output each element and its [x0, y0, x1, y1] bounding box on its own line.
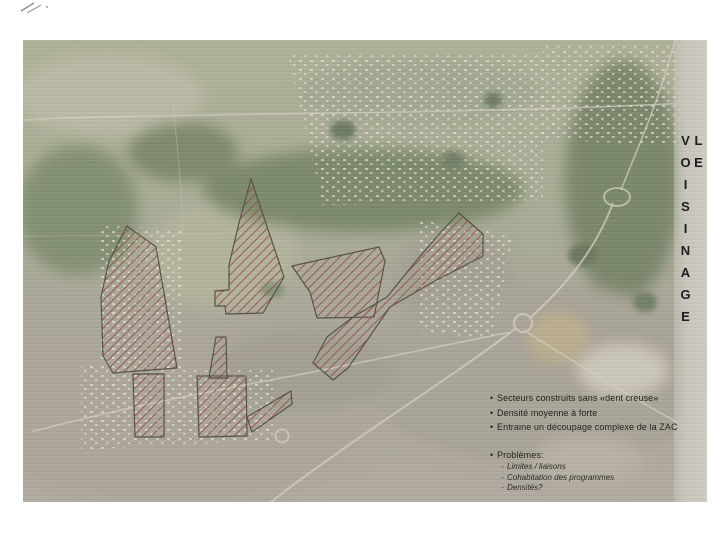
- note-bullet: •Entraine un découpage complexe de la ZA…: [490, 420, 680, 435]
- note-text: Densité moyenne à forte: [497, 408, 597, 418]
- problem-text: Limites / liaisons: [507, 462, 566, 471]
- vertical-title: LE VOISINAGE: [683, 133, 705, 393]
- problem-text: Cohabitation des programmes: [507, 473, 614, 482]
- hatched-sector-bottom-left: [133, 374, 164, 437]
- problem-item: -Densités?: [501, 483, 680, 494]
- bullet-marker: •: [490, 420, 497, 435]
- problem-item: -Cohabitation des programmes: [501, 473, 680, 484]
- note-text: Entraine un découpage complexe de la ZAC: [497, 422, 678, 432]
- note-bullet: •Secteurs construits sans «dent creuse»: [490, 391, 680, 406]
- problems-label: Problèmes:: [497, 450, 544, 460]
- bullet-marker: •: [490, 391, 497, 406]
- problem-item: -Limites / liaisons: [501, 462, 680, 473]
- pencil-mark: [14, 0, 74, 20]
- note-bullet: •Densité moyenne à forte: [490, 406, 680, 421]
- note-text: Secteurs construits sans «dent creuse»: [497, 393, 658, 403]
- hatched-sector-bottom-center: [197, 376, 247, 437]
- scanned-slide-page: LE VOISINAGE •Secteurs construits sans «…: [0, 0, 720, 540]
- problems-header: •Problèmes:: [490, 448, 680, 463]
- problem-text: Densités?: [507, 483, 543, 492]
- bullet-marker: •: [490, 448, 497, 463]
- bullet-marker: •: [490, 406, 497, 421]
- aerial-photo: LE VOISINAGE •Secteurs construits sans «…: [23, 40, 707, 502]
- notes-block: •Secteurs construits sans «dent creuse» …: [490, 391, 680, 494]
